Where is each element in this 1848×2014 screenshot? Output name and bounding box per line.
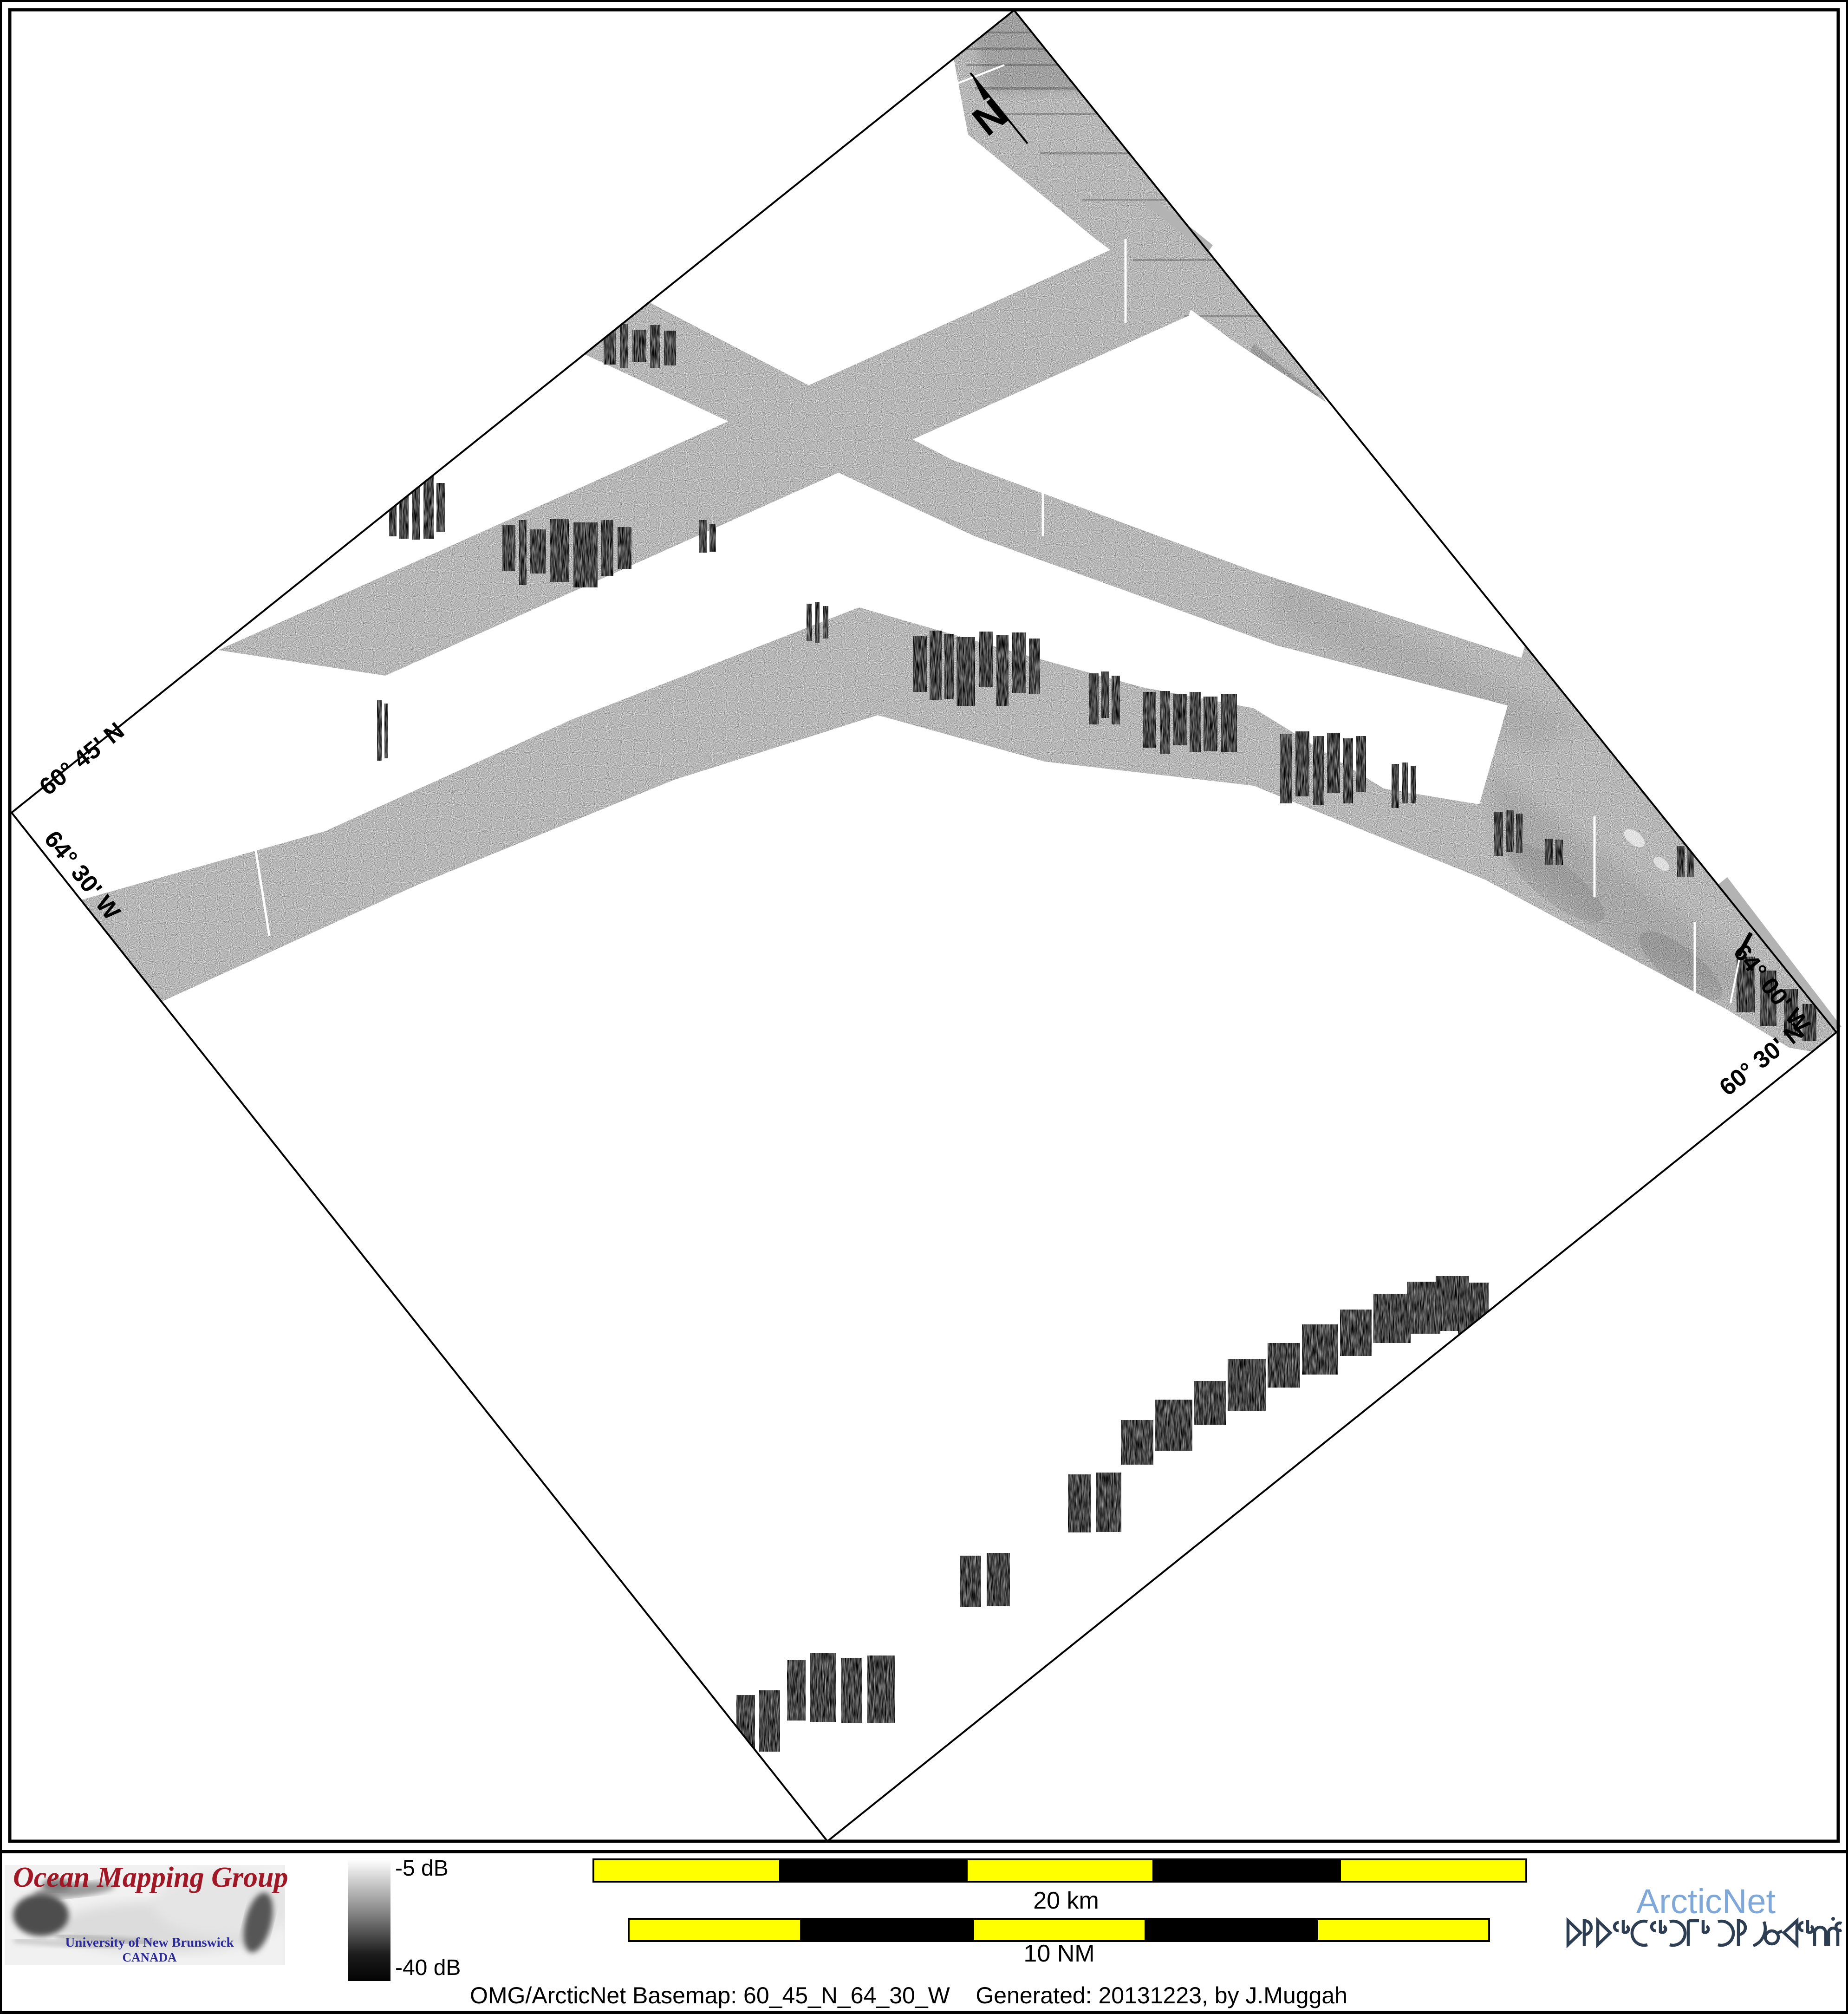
svg-text:University of New Brunswick: University of New Brunswick [65, 1935, 234, 1950]
svg-text:Ocean Mapping Group: Ocean Mapping Group [13, 1862, 288, 1893]
svg-text:-5 dB: -5 dB [395, 1856, 449, 1881]
svg-text:CANADA: CANADA [123, 1950, 177, 1964]
svg-text:ArcticNet: ArcticNet [1636, 1882, 1776, 1921]
svg-text:OMG/ArcticNet Basemap: 60_45_N: OMG/ArcticNet Basemap: 60_45_N_64_30_W G… [470, 1982, 1347, 2008]
svg-text:20 km: 20 km [1033, 1887, 1099, 1914]
svg-text:10 NM: 10 NM [1023, 1940, 1094, 1967]
svg-text:-40 dB: -40 dB [395, 1955, 461, 1980]
